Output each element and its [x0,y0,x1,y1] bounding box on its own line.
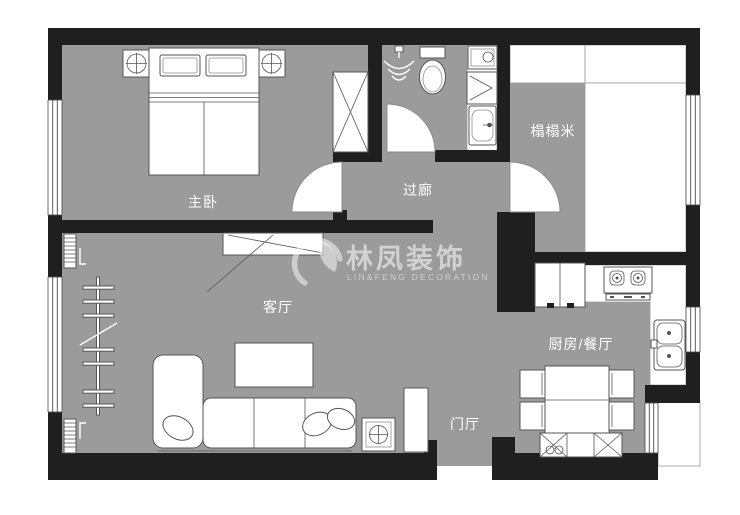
room-label-living: 客厅 [263,299,293,315]
wall-entry-post-right [492,437,515,454]
wardrobe-icon [333,72,368,152]
wall-corridor-tatami [497,42,510,162]
fridge-handle [567,303,574,308]
shoe-cabinet-icon [404,388,428,452]
watermark-brand: 林凤装饰 [346,244,466,274]
side-table-icon [362,418,395,451]
wall-kitchen-alcove [645,385,700,403]
bath-cabinet-icon [467,72,497,104]
wall-corridor-post [333,210,347,233]
chair-icon [607,370,634,398]
chair-icon [520,402,547,430]
window-living [48,277,62,412]
toilet-icon [420,47,446,94]
floor-plan-canvas: 主卧 过廊 榻榻米 客厅 厨房/餐厅 门厅 林凤装饰 LIN&FENG DECO… [0,0,740,515]
tatami-top-cabinet [510,45,686,83]
fridge-handle [547,303,554,308]
window-bedroom [48,100,62,215]
room-label-entry: 门厅 [450,416,480,432]
fridge-icon [535,263,585,308]
window-tatami [686,95,700,205]
room-label-master-bedroom: 主卧 [188,194,218,210]
exterior-alcove [658,400,700,466]
washing-machine-icon [468,46,497,69]
nightstand-left-icon [123,50,150,77]
double-bed-icon [149,48,259,175]
kitchen-sink-icon [651,320,685,370]
window-alcove [645,403,658,453]
coffee-table-icon [235,343,313,387]
wall-bedroom-living [48,220,433,233]
wall-bottom-left [48,453,437,480]
room-label-corridor: 过廊 [403,182,433,198]
chair-icon [520,370,547,398]
wall-bedroom-bath [368,42,382,152]
chair-icon [607,402,634,430]
tatami-platform [585,83,686,252]
wall-kitchen-corner [497,212,535,312]
room-label-tatami: 榻榻米 [531,123,576,139]
window-kitchen [686,307,700,352]
wall-bath-bottom-right [435,150,497,162]
nightstand-right-icon [258,50,285,77]
sideboard-icon [540,433,622,457]
floor-plan-drawing: 主卧 过廊 榻榻米 客厅 厨房/餐厅 门厅 林凤装饰 LIN&FENG DECO… [0,0,740,515]
bathroom-sink-icon [469,106,496,145]
watermark-subtitle: LIN&FENG DECORATION [347,272,490,282]
room-label-kitchen-dining: 厨房/餐厅 [549,336,614,352]
cooktop-icon [604,267,652,300]
